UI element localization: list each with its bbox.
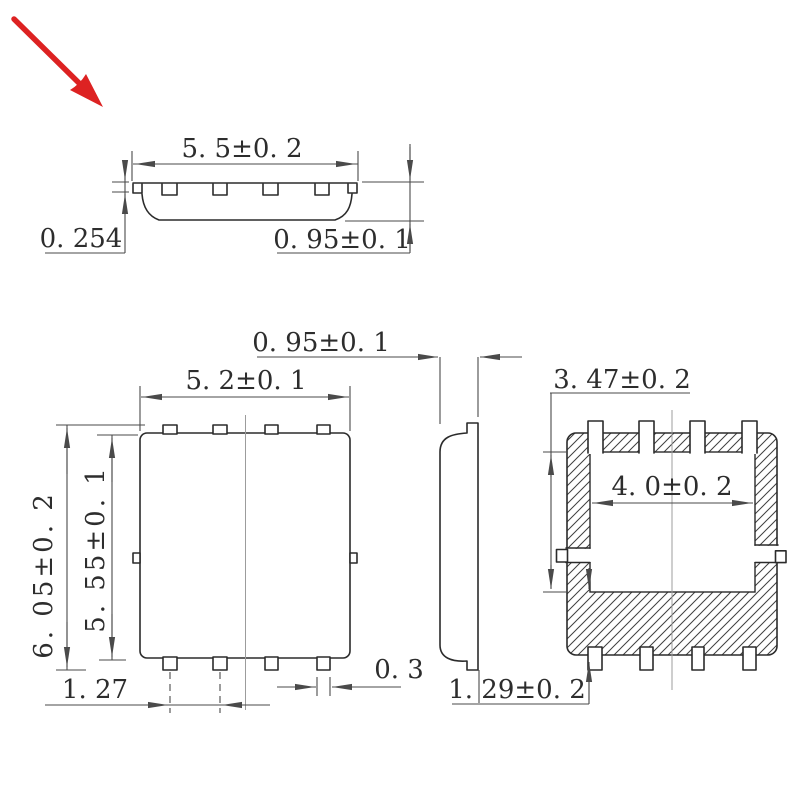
dim-overall-height-label: 6. 05±0. 2 xyxy=(29,491,59,659)
top-profile-view: 5. 5±0. 2 0. 254 0. 95±0. 1 xyxy=(40,134,424,255)
dim-body-height: 5. 55±0. 1 xyxy=(81,435,138,660)
dim-cavity-width-label: 4. 0±0. 2 xyxy=(611,472,732,502)
dim-top-height-label: 0. 95±0. 1 xyxy=(273,225,411,255)
package-outline xyxy=(133,183,357,220)
technical-drawing-canvas: 5. 5±0. 2 0. 254 0. 95±0. 1 xyxy=(0,0,800,800)
dim-lead-pitch-label: 1. 27 xyxy=(62,675,128,705)
dim-top-width: 5. 5±0. 2 xyxy=(132,134,358,181)
package-outline xyxy=(440,423,478,670)
front-view: 5. 2±0. 1 6. 05±0. 2 5. 55±0. 1 1. 27 0.… xyxy=(29,366,424,713)
dim-base-height-label: 1. 29±0. 2 xyxy=(448,675,586,705)
dim-lead-thickness: 0. 254 xyxy=(40,160,129,254)
dim-cavity-depth-label: 3. 47±0. 2 xyxy=(553,365,691,395)
dim-lead-pitch: 1. 27 xyxy=(45,672,270,713)
section-view: 3. 47±0. 2 4. 0±0. 2 1. 29±0. 2 xyxy=(448,365,786,705)
package-outline xyxy=(133,415,357,710)
dim-top-width-label: 5. 5±0. 2 xyxy=(181,134,302,164)
dim-lead-thickness-label: 0. 254 xyxy=(40,224,123,254)
package-dimension-drawing: 5. 5±0. 2 0. 254 0. 95±0. 1 xyxy=(0,0,800,800)
dim-lead-width-label: 0. 3 xyxy=(374,655,424,685)
dim-front-width-label: 5. 2±0. 1 xyxy=(185,366,306,396)
red-pointer-arrow xyxy=(14,19,103,107)
dim-side-thickness-label: 0. 95±0. 1 xyxy=(252,328,390,358)
dim-lead-width: 0. 3 xyxy=(277,655,424,696)
dim-cavity-width: 4. 0±0. 2 xyxy=(592,472,753,503)
red-arrow-shaft xyxy=(14,19,81,85)
dim-body-height-label: 5. 55±0. 1 xyxy=(81,465,111,633)
